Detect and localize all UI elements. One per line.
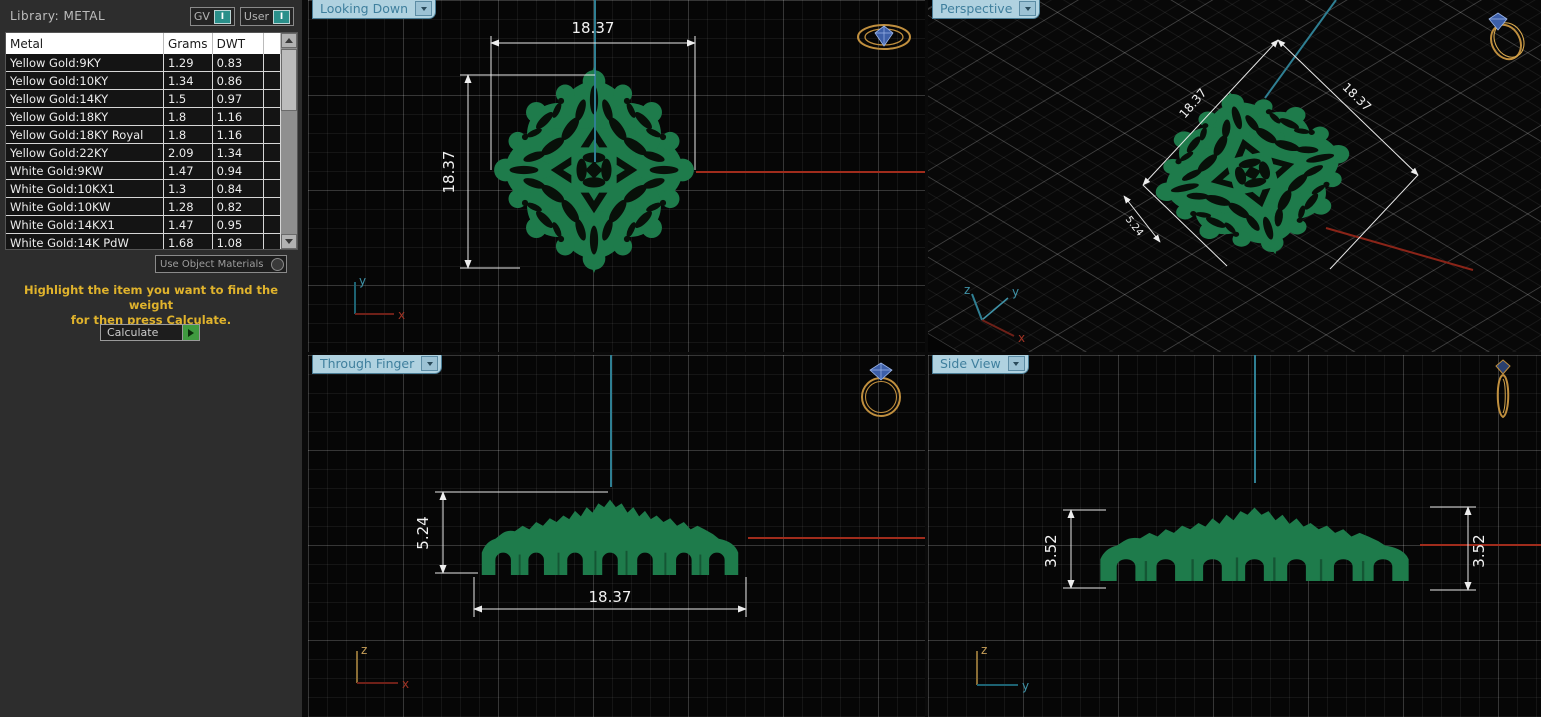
viewport-title: Looking Down xyxy=(320,1,408,16)
pendant-object-front-profile[interactable] xyxy=(474,495,746,575)
axis-indicator: z y x xyxy=(954,280,1064,344)
axis-y-label: y xyxy=(359,274,366,288)
cell-dwt: 1.34 xyxy=(212,144,264,162)
table-row[interactable]: White Gold:14K PdW1.681.08 xyxy=(6,234,281,251)
axis-indicator: z y xyxy=(964,645,1074,697)
cell-metal: White Gold:9KW xyxy=(6,162,163,180)
viewport-title: Through Finger xyxy=(320,356,414,371)
scroll-down-arrow[interactable] xyxy=(281,234,297,249)
axis-z-label: z xyxy=(964,283,970,297)
cell-metal: Yellow Gold:22KY xyxy=(6,144,163,162)
cell-filler xyxy=(264,234,281,251)
calculate-button[interactable]: Calculate xyxy=(100,324,200,341)
cell-dwt: 0.95 xyxy=(212,216,264,234)
viewport-title: Perspective xyxy=(940,1,1012,16)
axis-indicator: y x xyxy=(342,274,452,326)
viewport-dropdown-button[interactable] xyxy=(415,1,432,16)
scroll-up-arrow[interactable] xyxy=(281,33,297,48)
cell-filler xyxy=(264,90,281,108)
cell-grams: 2.09 xyxy=(163,144,212,162)
viewport-title: Side View xyxy=(940,356,1001,371)
viewport-looking-down[interactable]: 18.37 18.37 Looking Down y xyxy=(308,0,925,352)
viewport-grid: 18.37 18.37 Looking Down y xyxy=(302,0,1541,717)
viewport-through-finger[interactable]: 5.24 18.37 Through Finger z xyxy=(308,355,925,717)
chevron-down-icon xyxy=(427,362,433,366)
cell-grams: 1.47 xyxy=(163,216,212,234)
cell-dwt: 0.84 xyxy=(212,180,264,198)
cell-dwt: 0.82 xyxy=(212,198,264,216)
horizontal-dimension xyxy=(474,577,746,617)
axis-z-label: z xyxy=(361,643,367,657)
cell-dwt: 1.08 xyxy=(212,234,264,251)
cell-filler xyxy=(264,216,281,234)
table-row[interactable]: Yellow Gold:18KY1.81.16 xyxy=(6,108,281,126)
table-row[interactable]: White Gold:14KX11.470.95 xyxy=(6,216,281,234)
axis-z-label: z xyxy=(981,645,987,657)
gv-label: GV xyxy=(194,10,210,23)
use-object-materials-dropdown[interactable]: Use Object Materials xyxy=(155,255,287,273)
cell-grams: 1.68 xyxy=(163,234,212,251)
calculate-go-button[interactable] xyxy=(182,325,199,340)
cell-dwt: 0.86 xyxy=(212,72,264,90)
ring-top-view-icon xyxy=(853,18,915,56)
cell-dwt: 0.97 xyxy=(212,90,264,108)
axis-indicator: z x xyxy=(344,643,454,695)
instruction-line-1: Highlight the item you want to find the … xyxy=(0,283,302,313)
cell-filler xyxy=(264,198,281,216)
cell-metal: White Gold:14KX1 xyxy=(6,216,163,234)
calculate-label: Calculate xyxy=(107,326,158,339)
dim-left-label: 3.52 xyxy=(1042,534,1060,567)
dim-width-label: 18.37 xyxy=(589,588,632,606)
tab-through-finger[interactable]: Through Finger xyxy=(312,355,442,374)
table-header-row: Metal Grams DWT xyxy=(6,33,281,54)
tab-looking-down[interactable]: Looking Down xyxy=(312,0,436,19)
instruction-text: Highlight the item you want to find the … xyxy=(0,283,302,328)
tab-side-view[interactable]: Side View xyxy=(932,355,1029,374)
gv-toggle-button[interactable]: I xyxy=(214,10,231,24)
play-icon xyxy=(188,329,194,337)
column-header-dwt: DWT xyxy=(212,33,264,54)
viewport-dropdown-button[interactable] xyxy=(421,356,438,371)
cell-dwt: 1.16 xyxy=(212,126,264,144)
pendant-object-side-profile[interactable] xyxy=(1091,503,1418,581)
column-header-grams: Grams xyxy=(163,33,212,54)
cell-metal: Yellow Gold:10KY xyxy=(6,72,163,90)
table-row[interactable]: Yellow Gold:14KY1.50.97 xyxy=(6,90,281,108)
viewport-side-view[interactable]: 3.52 3.52 Side View z y xyxy=(928,355,1541,717)
dim-right-label: 3.52 xyxy=(1470,534,1488,567)
cell-grams: 1.29 xyxy=(163,54,212,72)
user-toggle-button[interactable]: I xyxy=(273,10,290,24)
app-window: Library: METAL GV I User I Metal Grams xyxy=(0,0,1541,717)
cell-filler xyxy=(264,54,281,72)
cell-dwt: 0.83 xyxy=(212,54,264,72)
axis-x-label: x xyxy=(398,308,405,322)
cell-metal: Yellow Gold:18KY xyxy=(6,108,163,126)
dim-height-label: 5.24 xyxy=(414,516,432,549)
cell-dwt: 0.94 xyxy=(212,162,264,180)
chevron-up-icon xyxy=(285,38,293,43)
cell-grams: 1.47 xyxy=(163,162,212,180)
cell-filler xyxy=(264,144,281,162)
tab-perspective[interactable]: Perspective xyxy=(932,0,1040,19)
cell-metal: Yellow Gold:14KY xyxy=(6,90,163,108)
ring-perspective-icon xyxy=(1483,10,1529,66)
cell-filler xyxy=(264,180,281,198)
axis-x-label: x xyxy=(1018,331,1025,344)
cell-grams: 1.28 xyxy=(163,198,212,216)
cell-filler xyxy=(264,108,281,126)
metal-library-panel: Library: METAL GV I User I Metal Grams xyxy=(0,0,302,717)
table-row[interactable]: Yellow Gold:18KY Royal1.81.16 xyxy=(6,126,281,144)
table-row[interactable]: White Gold:10KX11.30.84 xyxy=(6,180,281,198)
gv-toggle[interactable]: GV I xyxy=(190,7,235,26)
scrollbar-thumb[interactable] xyxy=(281,49,297,111)
cell-filler xyxy=(264,72,281,90)
materials-dropdown-label: Use Object Materials xyxy=(160,259,263,270)
library-title: Library: METAL xyxy=(10,9,105,23)
cell-filler xyxy=(264,126,281,144)
dim-height-label: 18.37 xyxy=(440,151,458,194)
cell-metal: Yellow Gold:9KY xyxy=(6,54,163,72)
viewport-perspective[interactable]: 18.37 18.37 5.24 Perspective z y x xyxy=(928,0,1541,352)
chevron-down-icon xyxy=(1025,7,1031,11)
chevron-down-icon xyxy=(285,239,293,244)
table-row[interactable]: White Gold:9KW1.470.94 xyxy=(6,162,281,180)
cell-grams: 1.8 xyxy=(163,126,212,144)
table-row[interactable]: White Gold:10KW1.280.82 xyxy=(6,198,281,216)
cell-metal: White Gold:14K PdW xyxy=(6,234,163,251)
table-row[interactable]: Yellow Gold:10KY1.340.86 xyxy=(6,72,281,90)
cell-metal: Yellow Gold:18KY Royal xyxy=(6,126,163,144)
library-toggles: GV I User I xyxy=(190,7,294,26)
cell-grams: 1.3 xyxy=(163,180,212,198)
materials-dropdown-button[interactable] xyxy=(271,258,284,271)
table-row[interactable]: Yellow Gold:9KY1.290.83 xyxy=(6,54,281,72)
column-header-metal: Metal xyxy=(6,33,163,54)
ring-side-view-icon xyxy=(1489,359,1517,421)
chevron-down-icon xyxy=(1013,362,1019,366)
cell-grams: 1.34 xyxy=(163,72,212,90)
table-scrollbar[interactable] xyxy=(281,33,297,249)
user-label: User xyxy=(244,10,269,23)
user-toggle[interactable]: User I xyxy=(240,7,294,26)
chevron-down-icon xyxy=(421,7,427,11)
cell-dwt: 1.16 xyxy=(212,108,264,126)
library-header: Library: METAL GV I User I xyxy=(0,0,302,30)
axis-y-label: y xyxy=(1012,285,1019,299)
axis-x-label: x xyxy=(402,677,409,691)
ring-front-view-icon xyxy=(855,361,907,421)
viewport-dropdown-button[interactable] xyxy=(1008,356,1025,371)
axis-y-label: y xyxy=(1022,679,1029,693)
pendant-object-top-view[interactable] xyxy=(491,67,697,273)
table-row[interactable]: Yellow Gold:22KY2.091.34 xyxy=(6,144,281,162)
viewport-dropdown-button[interactable] xyxy=(1019,1,1036,16)
cell-filler xyxy=(264,162,281,180)
cell-metal: White Gold:10KW xyxy=(6,198,163,216)
cell-grams: 1.5 xyxy=(163,90,212,108)
dim-width-label: 18.37 xyxy=(572,19,615,37)
cell-grams: 1.8 xyxy=(163,108,212,126)
right-dimension xyxy=(1430,507,1476,590)
column-header-filler xyxy=(264,33,281,54)
cell-metal: White Gold:10KX1 xyxy=(6,180,163,198)
metal-table: Metal Grams DWT Yellow Gold:9KY1.290.83 … xyxy=(5,32,298,250)
